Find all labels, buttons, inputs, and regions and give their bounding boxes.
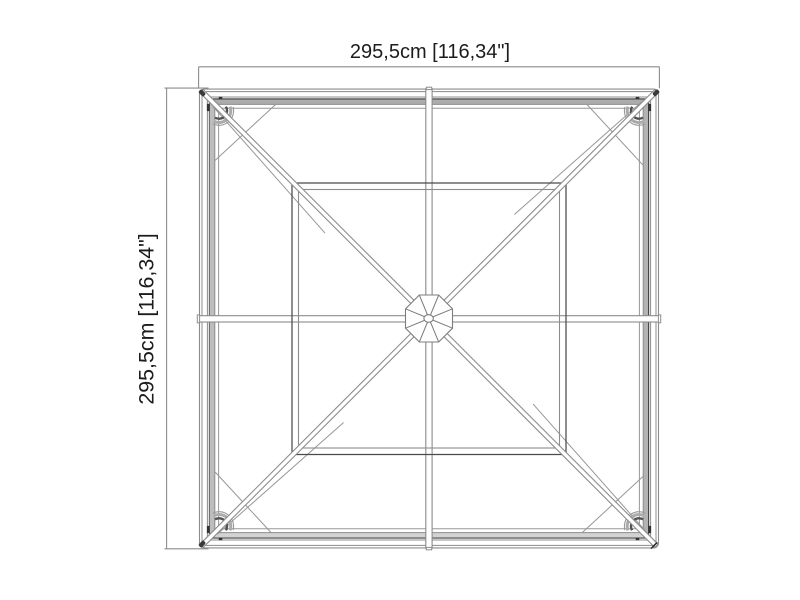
- svg-text:295,5cm [116,34"]: 295,5cm [116,34"]: [135, 233, 159, 404]
- svg-text:295,5cm [116,34"]: 295,5cm [116,34"]: [350, 41, 510, 63]
